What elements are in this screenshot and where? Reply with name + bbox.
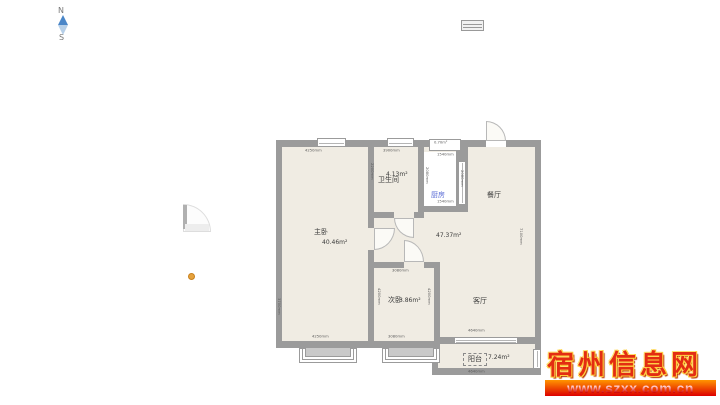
window-living-balcony — [454, 337, 518, 344]
window-top-bath — [387, 138, 414, 147]
dim-kitchen-top: 1540mm — [437, 153, 454, 157]
compass-south-label: S — [59, 34, 64, 42]
room-label-kitchen: 厨房 — [431, 192, 445, 199]
wall-second-living — [434, 262, 440, 341]
watermark-url: www.szxx.com.cn — [567, 381, 694, 395]
watermark-site-name: 宿州信息网 — [547, 352, 702, 379]
window-legend-icon — [461, 20, 484, 31]
dim-kitchen-right: 2080mm — [460, 170, 464, 187]
dim-master-bottom: 4250mm — [312, 335, 329, 339]
dim-bath-top: 3900mm — [383, 149, 400, 153]
door-base — [185, 224, 209, 231]
bay-window-master — [299, 348, 357, 363]
entry-door-arc-icon — [486, 121, 506, 141]
room-label-bathroom: 卫生间 — [378, 177, 399, 184]
dim-second-bottom: 3080mm — [388, 335, 405, 339]
dim-left-side: 3700mm — [277, 298, 281, 315]
window-top-master — [317, 138, 346, 147]
wall-balcony-bottom — [432, 368, 541, 375]
dim-kitchen-left: 2080mm — [425, 167, 429, 184]
dim-kitchen-bottom: 1540mm — [437, 200, 454, 204]
compass-north-label: N — [58, 7, 64, 15]
north-arrow-icon — [57, 15, 69, 35]
dim-right-side: 7100mm — [519, 228, 523, 245]
area-label-balcony: 7.24m² — [488, 355, 510, 361]
dim-balcony-top: 4640mm — [468, 329, 485, 333]
room-label-living: 客厅 — [473, 298, 487, 305]
floorplan-canvas: N S 0.70m² — [0, 0, 720, 405]
bay-window-second — [382, 348, 440, 363]
wall-right — [535, 146, 541, 344]
room-label-master-bedroom: 主卧 — [314, 229, 328, 236]
wall-left — [276, 146, 282, 348]
dim-bath-left: 2200mm — [370, 163, 374, 180]
wall-bottom-left — [276, 341, 440, 348]
dim-second-right: 4200mm — [427, 288, 431, 305]
dim-second-left: 4200mm — [377, 288, 381, 305]
wall-bath-bottom-a — [368, 212, 394, 218]
room-label-balcony: 阳台 — [468, 356, 482, 363]
area-label-hall: 47.37m² — [436, 233, 461, 239]
watermark-url-bar: www.szxx.com.cn — [545, 380, 716, 396]
dim-master-top: 4250mm — [305, 149, 322, 153]
room-label-dining: 餐厅 — [487, 192, 501, 199]
wall-second-top-a — [368, 262, 404, 268]
orange-dot-marker — [188, 273, 195, 280]
balcony-label-box: 阳台 — [463, 353, 487, 366]
window-balcony-right — [533, 349, 541, 369]
dim-balcony-bottom: 4640mm — [468, 370, 485, 374]
area-label-second-bedroom: 3.86m² — [399, 298, 421, 304]
dim-second-top: 3080mm — [392, 269, 409, 273]
duct-area-label: 0.70m² — [434, 141, 447, 145]
area-label-master-bedroom: 40.46m² — [322, 240, 347, 246]
entry-door-opening — [486, 140, 506, 147]
